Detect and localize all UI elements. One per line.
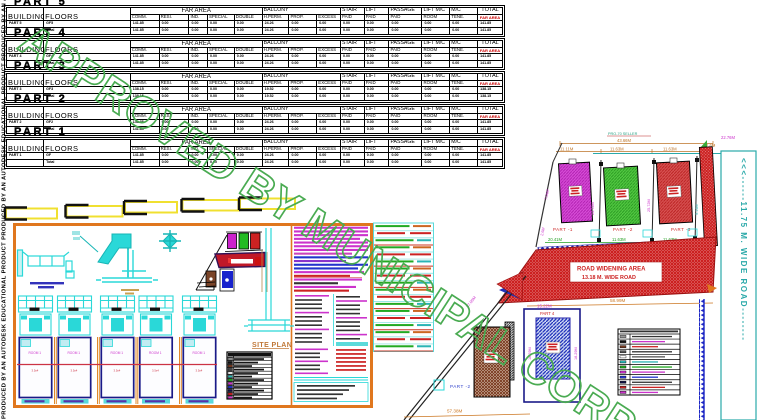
svg-text:ROOM 1: ROOM 1: [193, 351, 206, 355]
svg-text:PART 4: PART 4: [540, 311, 555, 316]
svg-text:25.72M: 25.72M: [647, 199, 651, 212]
svg-text:58.99M: 58.99M: [610, 298, 625, 303]
svg-text:23.72M: 23.72M: [591, 202, 595, 215]
svg-text:15.22M: 15.22M: [537, 304, 552, 309]
svg-text:18.29M: 18.29M: [574, 347, 578, 360]
svg-text:3.5x4: 3.5x4: [196, 369, 203, 373]
svg-text:ROOM 1: ROOM 1: [149, 351, 162, 355]
svg-text:3.5x4: 3.5x4: [32, 369, 39, 373]
svg-text:2.6M: 2.6M: [540, 227, 546, 236]
svg-text:<<<------11.75 M. WIDE ROAD---: <<<------11.75 M. WIDE ROAD--------: [739, 158, 748, 341]
svg-text:ROOM 1: ROOM 1: [29, 351, 42, 355]
svg-text:22.76M: 22.76M: [721, 135, 735, 140]
svg-text:3.5x4: 3.5x4: [114, 369, 121, 373]
svg-text:3.5x4: 3.5x4: [152, 369, 159, 373]
svg-text:3.5x4: 3.5x4: [71, 369, 78, 373]
svg-text:ROOM 1: ROOM 1: [68, 351, 81, 355]
svg-text:11.63M: 11.63M: [612, 237, 626, 242]
svg-text:57.38M: 57.38M: [447, 409, 462, 414]
svg-text:13.18 M. WIDE ROAD: 13.18 M. WIDE ROAD: [582, 275, 636, 281]
svg-text:PART -2: PART -2: [613, 227, 633, 232]
svg-text:SITE PLAN: SITE PLAN: [252, 342, 292, 349]
svg-text:PART -2: PART -2: [450, 384, 471, 389]
svg-text:PRO-70 SELLER: PRO-70 SELLER: [608, 132, 638, 136]
svg-text:11.11M: 11.11M: [560, 147, 574, 152]
svg-text:11.63M: 11.63M: [610, 147, 624, 152]
svg-text:ROOM 1: ROOM 1: [111, 351, 124, 355]
svg-text:PART -1: PART -1: [553, 227, 573, 232]
svg-text:9.14M: 9.14M: [695, 204, 699, 215]
svg-text:43.66M: 43.66M: [617, 138, 631, 143]
svg-text:7.04M: 7.04M: [544, 189, 550, 200]
svg-text:11.63M: 11.63M: [663, 147, 677, 152]
svg-text:ROAD WIDENING AREA: ROAD WIDENING AREA: [577, 267, 646, 273]
svg-text:20.41M: 20.41M: [548, 237, 562, 242]
